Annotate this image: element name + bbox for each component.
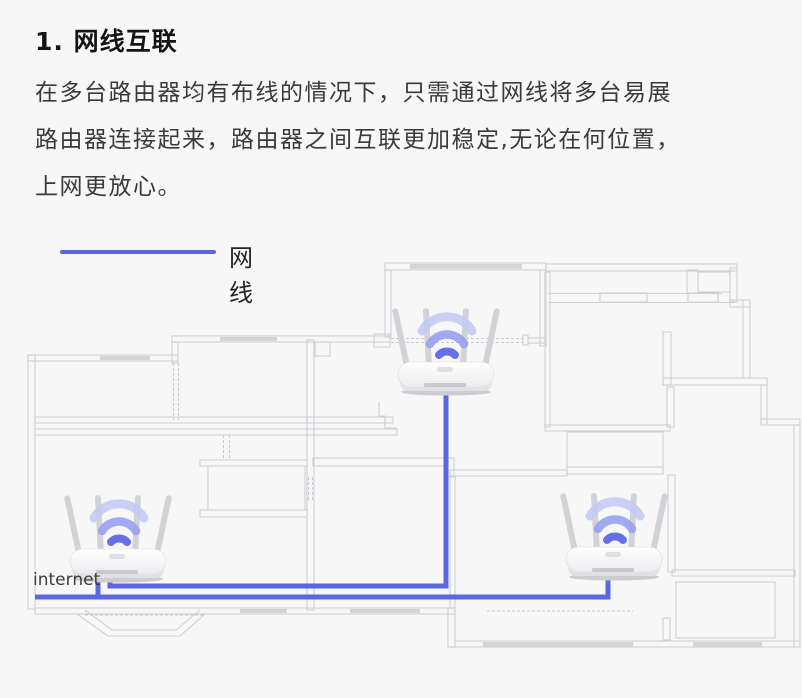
description-paragraph: 在多台路由器均有布线的情况下，只需通过网线将多台易展 路由器连接起来，路由器之间…	[35, 70, 785, 211]
floorplan-walls	[28, 263, 800, 647]
bottom-right-router-icon	[560, 493, 668, 581]
floorplan-diagram	[0, 258, 802, 698]
page-title: 1. 网线互联	[35, 22, 178, 58]
page: 1. 网线互联 在多台路由器均有布线的情况下，只需通过网线将多台易展 路由器连接…	[0, 0, 802, 698]
cable-legend-line	[60, 250, 216, 254]
paragraph-line: 上网更放心。	[35, 164, 785, 211]
top-router-icon	[392, 308, 500, 396]
floorplan-doors-dashed	[85, 339, 633, 616]
paragraph-line: 在多台路由器均有布线的情况下，只需通过网线将多台易展	[35, 70, 785, 117]
paragraph-line: 路由器连接起来，路由器之间互联更加稳定,无论在何位置，	[35, 117, 785, 164]
internet-label: internet	[33, 570, 100, 590]
